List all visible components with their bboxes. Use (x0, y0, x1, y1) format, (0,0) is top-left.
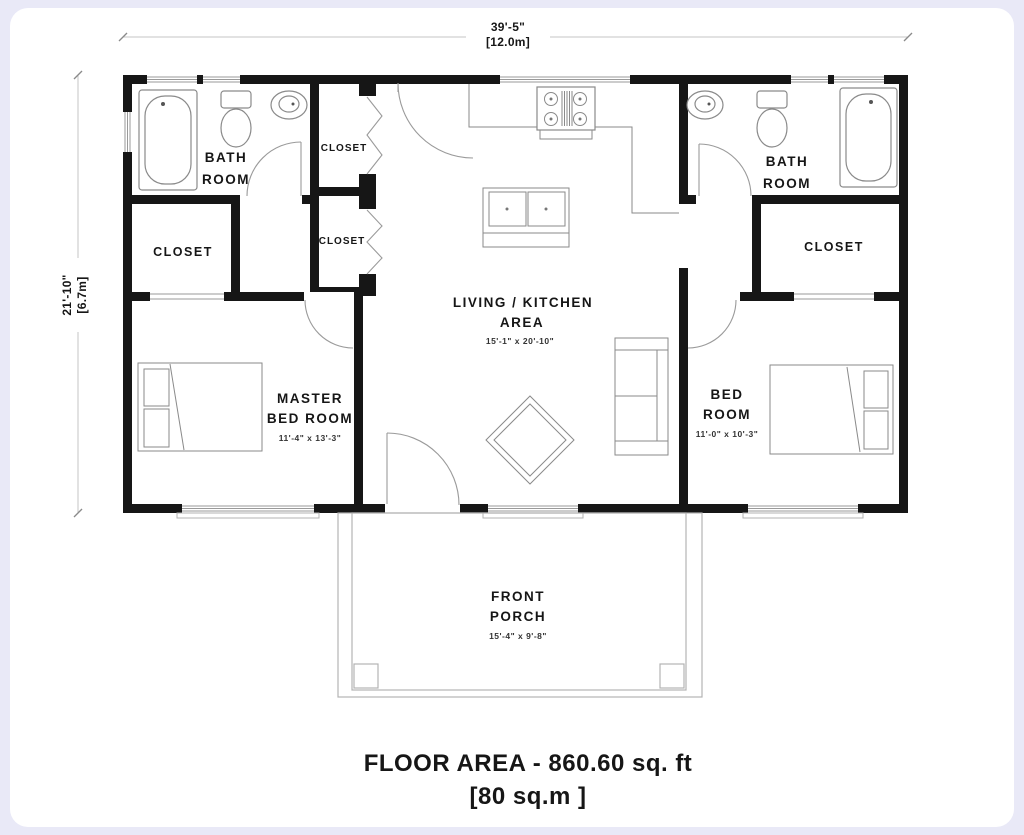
bath-left-door-opening (240, 195, 302, 204)
front-porch-label-2: PORCH (490, 609, 546, 624)
window-bath-right-1 (791, 75, 828, 84)
closet-left-opening (150, 292, 224, 301)
living-kitchen-size: 15'-1" x 20'-10" (486, 336, 554, 346)
overall-depth-m: [6.7m] (75, 276, 89, 313)
hall-right-opening (679, 204, 688, 268)
closet-right-opening (794, 292, 874, 301)
closet-mid-bottom-label: CLOSET (319, 236, 366, 247)
closet-left-label: CLOSET (153, 245, 213, 259)
master-bedroom-size: 11'-4" x 13'-3" (279, 433, 342, 443)
window-living (483, 504, 583, 518)
window-kitchen (500, 75, 630, 84)
floor-area-line-2: [80 sq.m ] (469, 783, 586, 810)
window-left-wall (123, 112, 132, 152)
bedroom-label-1: BED (710, 387, 743, 402)
sink-right-icon (687, 91, 723, 119)
living-kitchen-label-2: AREA (500, 315, 544, 330)
front-porch-label-1: FRONT (491, 589, 545, 604)
bedroom-door-opening (688, 292, 740, 301)
bathtub-right-icon (840, 88, 897, 187)
overall-width-ft: 39'-5" (491, 20, 525, 34)
bath-right-label-1: BATH (766, 154, 809, 169)
bedroom-label-2: ROOM (703, 407, 751, 422)
window-bath-left-1 (147, 75, 197, 84)
sink-left-icon (271, 91, 307, 119)
bedroom-size: 11'-0" x 10'-3" (696, 429, 759, 439)
floor-plan-canvas: 39'-5" [12.0m] 21'-10" [6.7m] (0, 0, 1024, 835)
bath-left-label-2: ROOM (202, 172, 250, 187)
window-bath-right-2 (834, 75, 884, 84)
floor-area-line-1: FLOOR AREA - 860.60 sq. ft (364, 750, 693, 777)
closet-mid-top-label: CLOSET (321, 143, 368, 154)
living-kitchen-label-1: LIVING / KITCHEN (453, 295, 593, 310)
master-bedroom-label-1: MASTER (277, 391, 343, 406)
master-door-opening (304, 292, 354, 301)
bath-right-label-2: ROOM (763, 176, 811, 191)
bath-left-label-1: BATH (205, 150, 248, 165)
overall-depth-ft: 21'-10" (60, 274, 74, 315)
overall-width-m: [12.0m] (486, 35, 530, 49)
toilet-right-icon (757, 91, 787, 147)
window-bath-left-2 (203, 75, 240, 84)
closet-right-label: CLOSET (804, 240, 864, 254)
front-porch-size: 15'-4" x 9'-8" (489, 631, 547, 641)
window-bedroom (743, 504, 863, 518)
bathtub-left-icon (139, 90, 197, 190)
toilet-left-icon (221, 91, 251, 147)
master-bedroom-label-2: BED ROOM (267, 411, 353, 426)
bath-right-door-opening (696, 195, 752, 204)
window-master-bedroom (177, 504, 319, 518)
front-door-opening (385, 504, 460, 513)
